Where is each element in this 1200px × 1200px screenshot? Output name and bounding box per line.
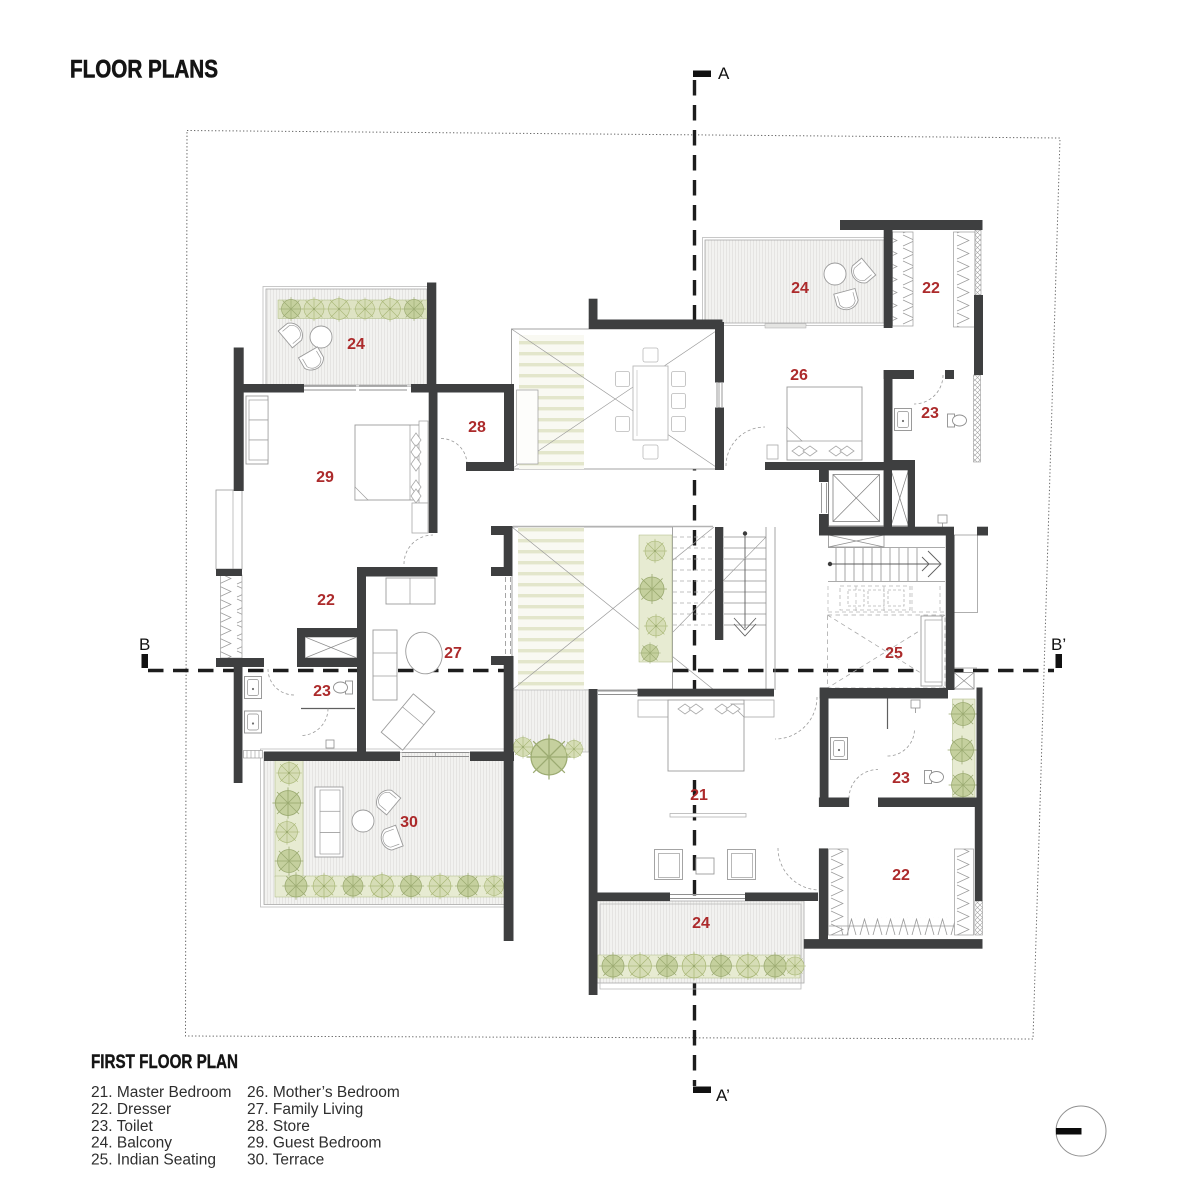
svg-text:28. Store: 28. Store [247, 1118, 310, 1135]
svg-text:29: 29 [316, 469, 334, 486]
svg-text:21. Master Bedroom: 21. Master Bedroom [91, 1084, 231, 1101]
svg-text:FIRST FLOOR PLAN: FIRST FLOOR PLAN [91, 1052, 238, 1073]
svg-text:25: 25 [885, 645, 903, 662]
svg-text:25. Indian Seating: 25. Indian Seating [91, 1152, 216, 1169]
svg-text:27: 27 [444, 645, 462, 662]
svg-text:FLOOR PLANS: FLOOR PLANS [70, 56, 218, 84]
svg-text:A’: A’ [716, 1086, 730, 1105]
svg-text:26. Mother’s Bedroom: 26. Mother’s Bedroom [247, 1084, 400, 1101]
svg-text:22: 22 [892, 867, 910, 884]
svg-text:23. Toilet: 23. Toilet [91, 1118, 153, 1135]
svg-text:27. Family Living: 27. Family Living [247, 1101, 363, 1118]
svg-text:A: A [718, 64, 730, 83]
svg-text:24: 24 [791, 280, 809, 297]
svg-text:23: 23 [892, 770, 910, 787]
svg-text:B’: B’ [1051, 635, 1066, 654]
svg-text:B: B [139, 635, 150, 654]
svg-text:22. Dresser: 22. Dresser [91, 1101, 171, 1118]
svg-text:24: 24 [692, 915, 710, 932]
svg-text:29. Guest Bedroom: 29. Guest Bedroom [247, 1135, 381, 1152]
svg-text:22: 22 [317, 592, 335, 609]
svg-text:28: 28 [468, 419, 486, 436]
svg-text:23: 23 [313, 683, 331, 700]
svg-text:22: 22 [922, 280, 940, 297]
svg-text:24. Balcony: 24. Balcony [91, 1135, 172, 1152]
svg-text:24: 24 [347, 336, 365, 353]
svg-text:30: 30 [400, 814, 418, 831]
svg-text:26: 26 [790, 367, 808, 384]
svg-text:23: 23 [921, 405, 939, 422]
svg-text:21: 21 [690, 787, 708, 804]
svg-text:30. Terrace: 30. Terrace [247, 1152, 324, 1169]
